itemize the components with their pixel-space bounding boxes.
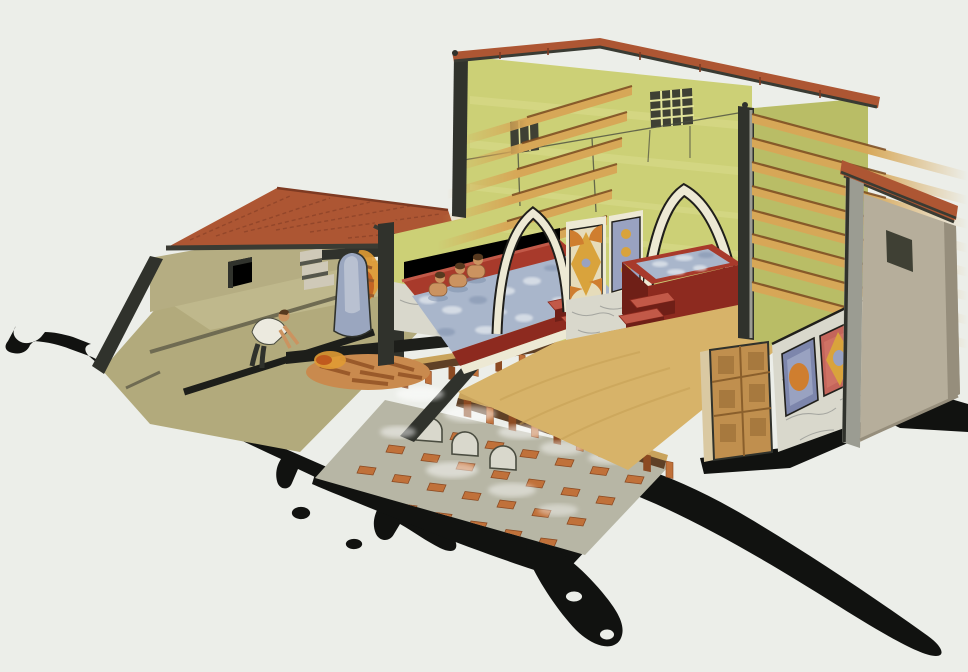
bather-hair [473, 254, 483, 261]
steam-wisp [488, 483, 536, 497]
steam-wisp [444, 406, 496, 422]
fire-glow-core [316, 355, 332, 365]
steam-wisp [380, 426, 416, 438]
bather-torso [429, 283, 447, 296]
hypocaust-arch [452, 432, 478, 456]
bather-torso [449, 274, 467, 287]
pila-base [625, 475, 644, 484]
pila-base [357, 466, 376, 475]
pila-base [386, 445, 405, 454]
pier-blue-panel-circle [621, 229, 631, 239]
steam-wisp [396, 387, 444, 401]
pila-base [567, 517, 586, 526]
entrance-door [700, 342, 772, 462]
pila-base [596, 496, 615, 505]
door-panel [719, 390, 735, 408]
bather-hair [455, 263, 465, 270]
water-mottle [667, 269, 685, 275]
water-mottle [442, 306, 462, 314]
pila-base [427, 483, 446, 492]
pila-stack [666, 461, 673, 479]
door-panel [718, 356, 734, 374]
water-mottle [437, 328, 455, 336]
pila-base [520, 450, 539, 459]
illustration-stage: Cutaway watercolour illustration of a Ro… [0, 0, 968, 672]
bather-hair [435, 272, 445, 279]
water-mottle [515, 314, 533, 322]
roof-finial-left [452, 50, 458, 56]
hypocaust-arch [490, 446, 516, 470]
water-mottle [523, 277, 541, 285]
water-mottle [693, 265, 707, 271]
panel-blue-medallion [789, 363, 809, 391]
door-panel [720, 424, 736, 442]
door-panel [748, 352, 764, 370]
water-mottle [469, 296, 487, 304]
pier-blue-panel-circle [621, 247, 631, 257]
pila-base [421, 454, 440, 463]
pila-stack [644, 454, 651, 472]
water-mottle [652, 261, 668, 267]
boiler-highlight [344, 256, 360, 313]
pier-diamond-center [582, 259, 591, 268]
water-mottle [675, 255, 693, 261]
pila-base [561, 488, 580, 497]
pila-base [392, 475, 411, 484]
bathhouse-cutaway-illustration: Cutaway watercolour illustration of a Ro… [0, 0, 968, 672]
pila-base [491, 471, 510, 480]
boiler [334, 247, 371, 337]
steam-wisp [426, 462, 478, 478]
roof-finial-right [742, 102, 748, 108]
left-cut-pillar-lower [378, 222, 394, 366]
pila-base [497, 500, 516, 509]
door-panel [749, 384, 765, 402]
bather-torso [467, 265, 485, 278]
left-cut-pillar-upper [452, 52, 468, 218]
water-mottle [698, 252, 714, 258]
pila-base [555, 458, 574, 467]
steam-wisp [538, 504, 578, 516]
pila-base [462, 492, 481, 501]
pila-base [590, 467, 609, 476]
door-panel [750, 418, 766, 436]
